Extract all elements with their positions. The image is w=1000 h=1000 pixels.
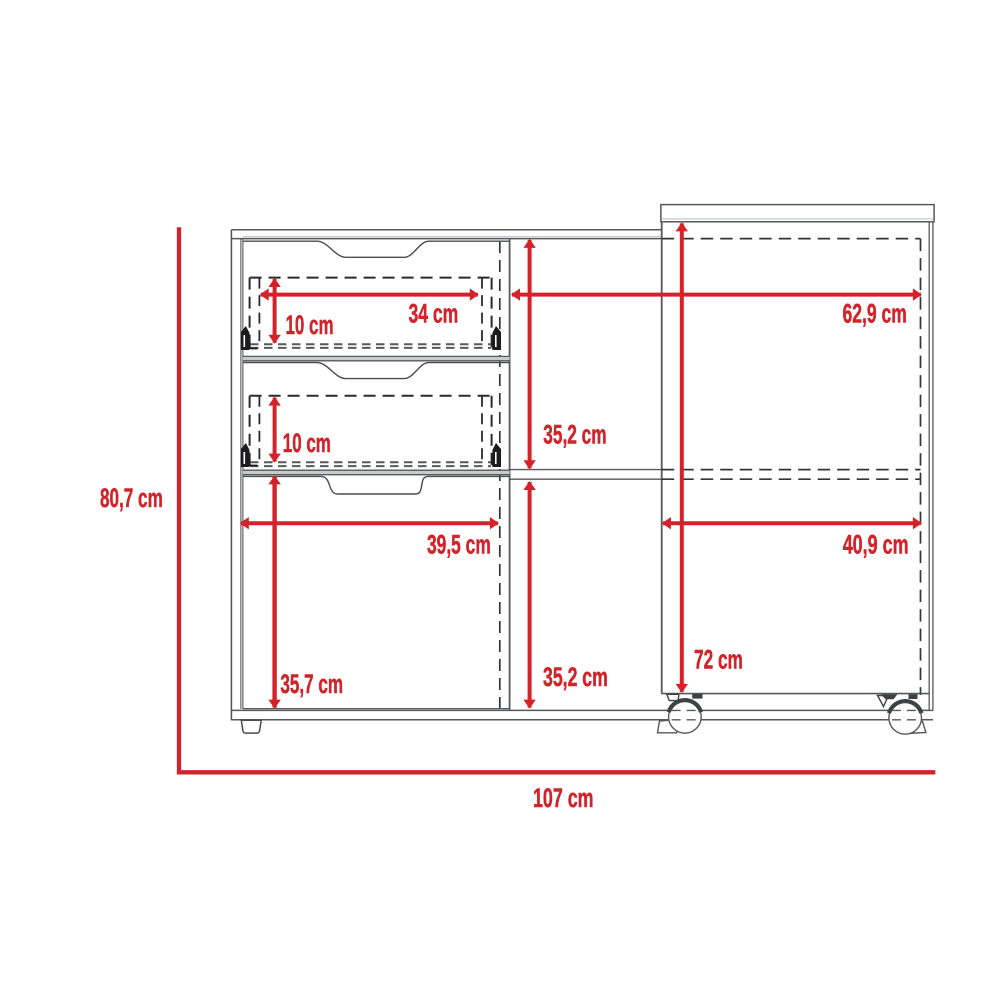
svg-text:39,5 cm: 39,5 cm: [427, 528, 491, 559]
svg-text:80,7 cm: 80,7 cm: [100, 483, 163, 513]
svg-text:40,9 cm: 40,9 cm: [843, 529, 909, 560]
svg-text:62,9 cm: 62,9 cm: [843, 298, 907, 329]
svg-text:72 cm: 72 cm: [694, 644, 743, 675]
svg-text:35,2 cm: 35,2 cm: [543, 418, 606, 449]
svg-text:35,7 cm: 35,7 cm: [280, 669, 343, 699]
svg-text:10 cm: 10 cm: [283, 428, 331, 458]
svg-text:10 cm: 10 cm: [286, 310, 334, 340]
svg-text:35,2 cm: 35,2 cm: [543, 661, 608, 692]
svg-text:34 cm: 34 cm: [409, 298, 459, 329]
svg-text:107 cm: 107 cm: [533, 782, 594, 813]
